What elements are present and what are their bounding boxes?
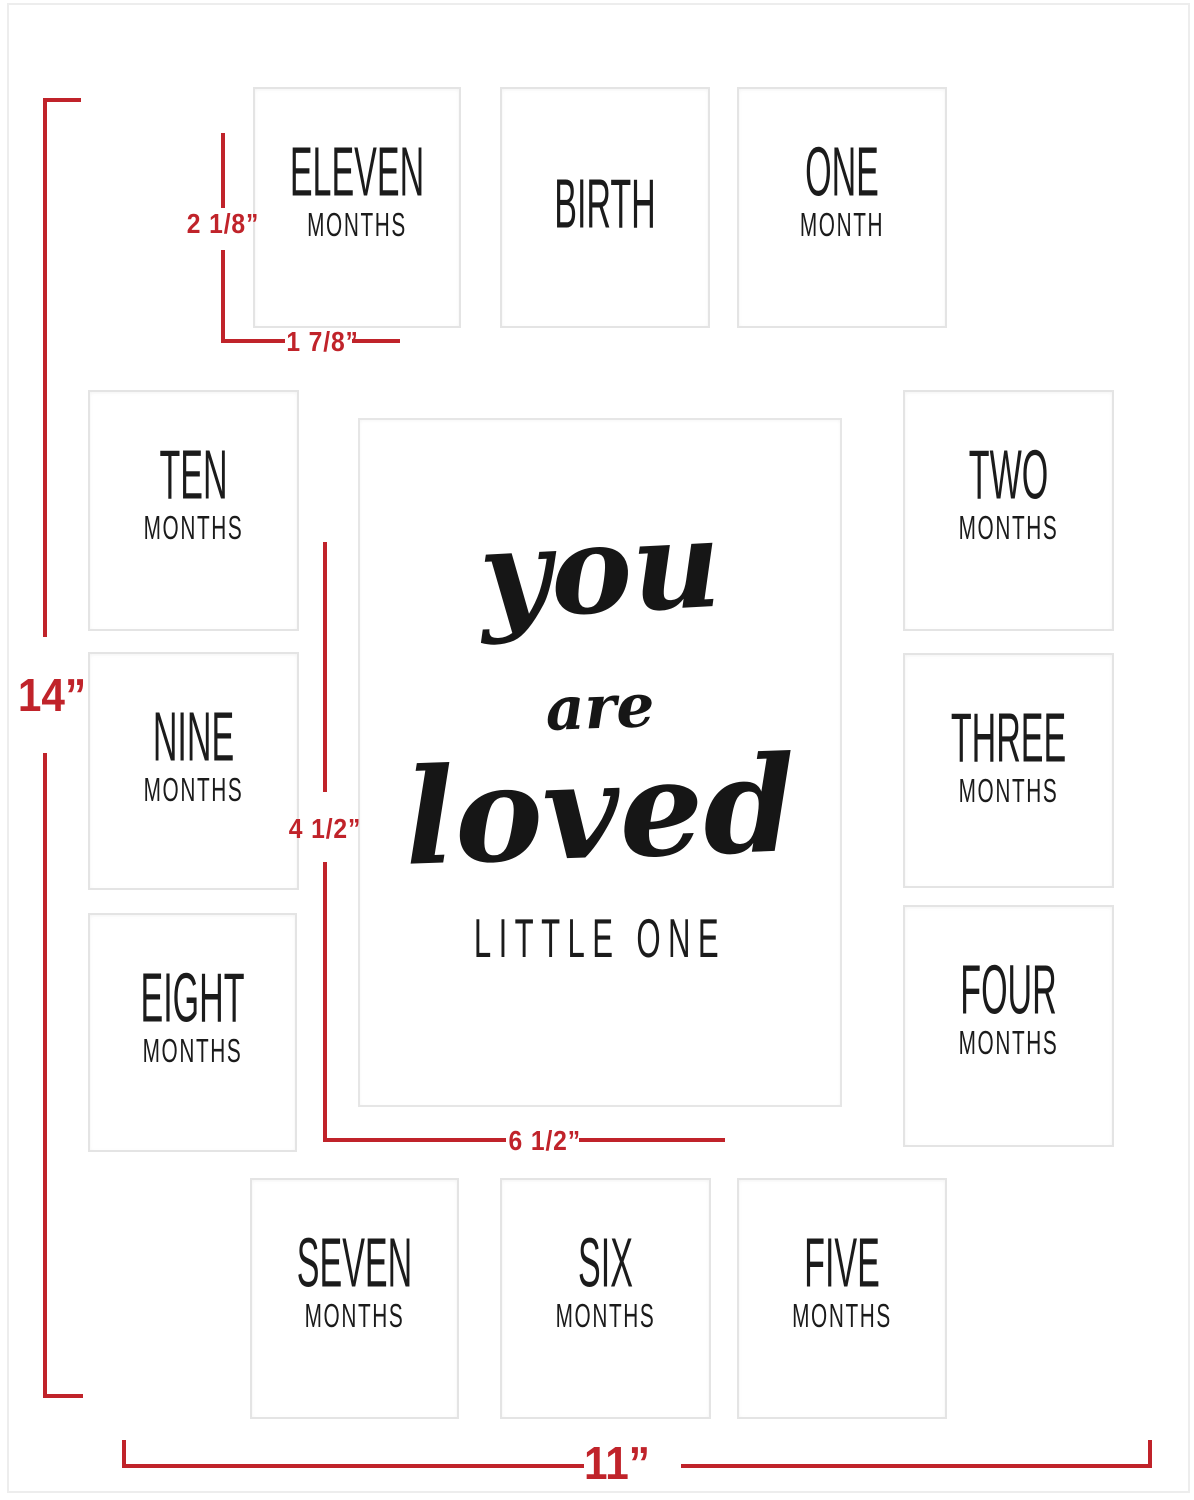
opening-label: FOUR MONTHS (905, 959, 1112, 1053)
opening-five-months: FIVE MONTHS (737, 1178, 947, 1419)
opening-word: TEN (117, 439, 270, 509)
dimension-line-segment (323, 542, 327, 792)
opening-label: ONE MONTH (739, 141, 945, 235)
dimension-line-segment (323, 1138, 506, 1142)
opening-four-months: FOUR MONTHS (903, 905, 1114, 1147)
opening-word: EIGHT (117, 962, 269, 1032)
opening-three-months: THREE MONTHS (903, 653, 1114, 888)
dimension-label-opening-height: 2 1/8” (183, 210, 262, 238)
opening-word: TWO (932, 439, 1085, 509)
opening-birth: BIRTH (500, 87, 710, 328)
milestone-mat-diagram: ELEVEN MONTHS BIRTH ONE MONTH TEN MONTHS… (0, 0, 1194, 1500)
dimension-end-cap (43, 1394, 83, 1398)
opening-ten-months: TEN MONTHS (88, 390, 299, 631)
opening-two-months: TWO MONTHS (903, 390, 1114, 631)
opening-label: NINE MONTHS (90, 706, 297, 800)
quote-word-loved: loved (358, 738, 842, 887)
opening-label: ELEVEN MONTHS (255, 141, 459, 235)
opening-word: NINE (117, 701, 270, 771)
center-art-panel: you are loved LITTLE ONE (358, 418, 842, 1107)
opening-label: SEVEN MONTHS (252, 1232, 457, 1326)
opening-nine-months: NINE MONTHS (88, 652, 299, 890)
opening-word-months: MONTHS (523, 1298, 689, 1332)
opening-word-months: MONTHS (111, 510, 277, 544)
opening-label: THREE MONTHS (905, 707, 1112, 801)
dimension-label-total-width: 11” (576, 1440, 659, 1486)
opening-label: TEN MONTHS (90, 444, 297, 538)
quote-subtitle: LITTLE ONE (403, 912, 797, 967)
opening-label: BIRTH (502, 173, 708, 219)
dimension-line-segment (323, 862, 327, 1142)
dimension-line-segment (221, 250, 225, 343)
opening-word-months: MONTHS (760, 1298, 925, 1332)
opening-word: THREE (932, 702, 1085, 772)
dimension-line-segment (681, 1464, 1152, 1468)
opening-word-months: MONTHS (926, 510, 1092, 544)
opening-label: EIGHT MONTHS (90, 967, 295, 1061)
dimension-line-segment (352, 339, 400, 343)
opening-word: BIRTH (529, 168, 681, 238)
opening-word-months: MONTHS (111, 1033, 275, 1067)
opening-eight-months: EIGHT MONTHS (88, 913, 297, 1152)
opening-word-months: MONTHS (926, 773, 1092, 807)
dimension-line-segment (43, 98, 47, 637)
dimension-line-segment (221, 133, 225, 208)
opening-eleven-months: ELEVEN MONTHS (253, 87, 461, 328)
dimension-line-segment (579, 1138, 725, 1142)
opening-label: FIVE MONTHS (739, 1232, 945, 1326)
dimension-end-cap (43, 98, 81, 102)
dimension-line-segment (221, 339, 285, 343)
opening-word-months: MONTHS (273, 1298, 437, 1332)
opening-word-months: MONTHS (111, 772, 277, 806)
opening-word-months: MONTHS (926, 1025, 1092, 1059)
opening-label: SIX MONTHS (502, 1232, 709, 1326)
dimension-label-opening-width: 1 7/8” (286, 328, 349, 356)
dimension-label-total-height: 14” (15, 672, 89, 718)
opening-word: FIVE (766, 1227, 918, 1297)
opening-word: ONE (766, 136, 918, 206)
opening-word: ELEVEN (282, 136, 433, 206)
opening-one-month: ONE MONTH (737, 87, 947, 328)
opening-word: SEVEN (279, 1227, 431, 1297)
quote-word-you: you (357, 496, 843, 643)
dimension-end-cap (1148, 1440, 1152, 1468)
dimension-line-segment (122, 1464, 584, 1468)
opening-label: TWO MONTHS (905, 444, 1112, 538)
opening-seven-months: SEVEN MONTHS (250, 1178, 459, 1419)
opening-word: FOUR (932, 954, 1085, 1024)
dimension-label-center-width: 6 1/2” (509, 1127, 576, 1155)
opening-word-months: MONTHS (275, 207, 438, 241)
dimension-label-center-height: 4 1/2” (288, 815, 362, 843)
opening-word: SIX (529, 1227, 682, 1297)
dimension-line-segment (43, 753, 47, 1398)
opening-six-months: SIX MONTHS (500, 1178, 711, 1419)
opening-word-months: MONTH (760, 207, 925, 241)
